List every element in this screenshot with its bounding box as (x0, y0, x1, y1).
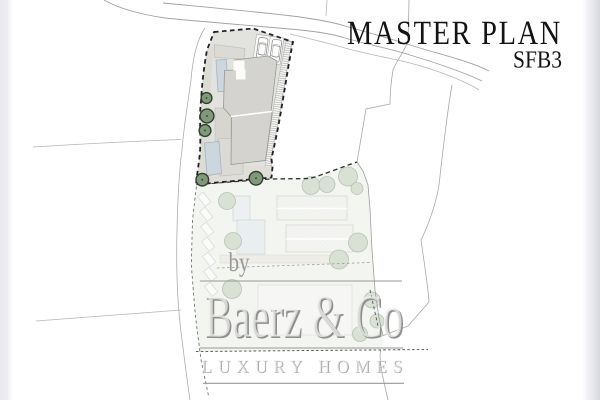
svg-text:LUXURY HOMES: LUXURY HOMES (201, 357, 408, 377)
svg-text:Baerz & Co: Baerz & Co (204, 283, 403, 350)
svg-text:by: by (229, 247, 250, 277)
svg-text:SFB3: SFB3 (513, 47, 562, 74)
